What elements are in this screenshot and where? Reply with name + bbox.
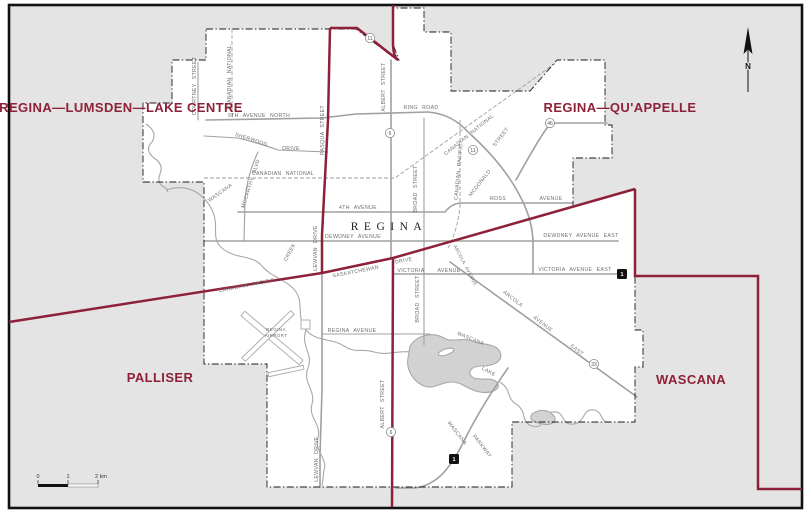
highway-shield-11: 11 (365, 33, 374, 42)
boundary-albert-south (392, 258, 393, 507)
highway-shield-6: 6 (385, 128, 394, 137)
street-label: VICTORIA AVENUE EAST (538, 267, 612, 273)
street-label: DRIVE (282, 146, 300, 152)
street-label: PASQUA STREET (320, 105, 326, 155)
street-label: REGINA (266, 327, 286, 332)
scale-tick-2km: 2 km (95, 474, 107, 480)
street-label: AVENUE (437, 268, 460, 274)
highway-shield-33: 33 (589, 359, 598, 368)
street-label: REGINA AVENUE (328, 328, 377, 334)
street-label: ALBERT STREET (380, 379, 386, 428)
map-page: COURTNEY STREETCANADIAN NATIONAL9TH AVEN… (0, 0, 811, 515)
highway-shield-6: 6 (386, 427, 395, 436)
svg-text:6: 6 (389, 131, 392, 137)
regina-city-label: REGINA (351, 221, 427, 233)
regina-districts-map: COURTNEY STREETCANADIAN NATIONAL9TH AVEN… (0, 0, 811, 515)
street-label: DEWDNEY AVENUE EAST (543, 233, 619, 239)
street-label: DEWDNEY AVENUE (325, 234, 381, 240)
street-label: BROAD STREET (413, 165, 419, 213)
trans-canada-shield-1: 1 (617, 269, 627, 279)
street-label: BROAD STREET (415, 275, 421, 323)
svg-text:11: 11 (367, 36, 372, 42)
street-label: ALBERT STREET (381, 62, 387, 111)
svg-text:1: 1 (452, 457, 455, 463)
street-label: AIRPORT (265, 333, 288, 338)
highway-shield-46: 46 (545, 118, 554, 127)
street-label: 4TH AVENUE (339, 205, 377, 211)
scale-tick-0: 0 (36, 474, 39, 480)
street-label: ROSS (490, 196, 506, 202)
svg-text:1: 1 (620, 272, 623, 278)
district-label: PALLISER (127, 370, 194, 385)
svg-text:46: 46 (547, 121, 553, 127)
north-label: N (745, 62, 751, 71)
svg-text:33: 33 (591, 362, 597, 368)
street-label: LEWVAN DRIVE (314, 436, 320, 482)
trans-canada-shield-1: 1 (449, 454, 459, 464)
district-label: WASCANA (656, 372, 726, 387)
svg-text:11: 11 (470, 148, 475, 154)
district-label: REGINA—QU'APPELLE (544, 100, 697, 115)
street-label: AVENUE (539, 196, 562, 202)
street-label: VICTORIA (397, 268, 424, 274)
district-label: REGINA—LUMSDEN—LAKE CENTRE (0, 100, 243, 115)
svg-text:6: 6 (390, 430, 393, 436)
street-label: CANADIAN NATIONAL (252, 171, 314, 177)
street-label: LEWVAN DRIVE (313, 225, 319, 271)
street-label: RING ROAD (403, 105, 438, 111)
highway-shield-11: 11 (468, 145, 477, 154)
street-label: CANADIAN NATIONAL (227, 45, 233, 107)
scale-tick-1: 1 (66, 474, 69, 480)
